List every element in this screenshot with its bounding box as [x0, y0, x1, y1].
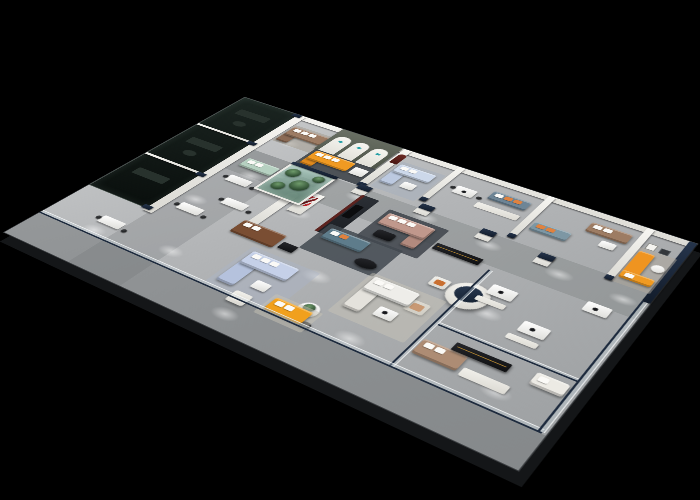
sofa-pillow [254, 163, 264, 168]
sofa-pillow [308, 134, 318, 138]
black-coffee-table [277, 242, 299, 253]
desk-chair [244, 210, 252, 214]
floor-plan [4, 97, 697, 470]
downlight-glow [541, 265, 578, 284]
desk-chair [120, 229, 129, 233]
front-terrace-floor [4, 213, 546, 471]
sofa-pillow [434, 347, 447, 355]
sofa-pillow [623, 272, 635, 279]
sofa-pillow [283, 304, 296, 311]
sofa-pillow [269, 261, 281, 267]
sofa-pillow [602, 228, 613, 234]
desk-chair [199, 215, 207, 219]
downlight-glow [206, 303, 244, 324]
showroom-render [0, 0, 700, 500]
sofa-pillow [408, 169, 418, 174]
sofa-pillow [592, 225, 603, 231]
east-glass-wall [538, 301, 648, 433]
leather-sofa [229, 220, 287, 248]
downlight-glow [605, 290, 641, 309]
sofa-pillow [383, 283, 395, 290]
white-coffee-table [597, 240, 617, 251]
downlight-glow [153, 242, 188, 260]
sofa-pillow [406, 222, 417, 228]
divider-cap [418, 196, 428, 201]
black-media-console [431, 243, 483, 266]
front-glass-balustrade [39, 210, 544, 434]
sofa-pillow [251, 225, 262, 231]
dining-chair [475, 196, 483, 200]
sofa-pillow [537, 376, 551, 385]
sofa-pillow-orange [512, 199, 523, 204]
sofa-pillow [330, 158, 340, 163]
steel-blue-sofa [528, 221, 572, 241]
sofa-pillow-orange [545, 227, 556, 233]
sofa-pillow-orange [338, 234, 349, 240]
